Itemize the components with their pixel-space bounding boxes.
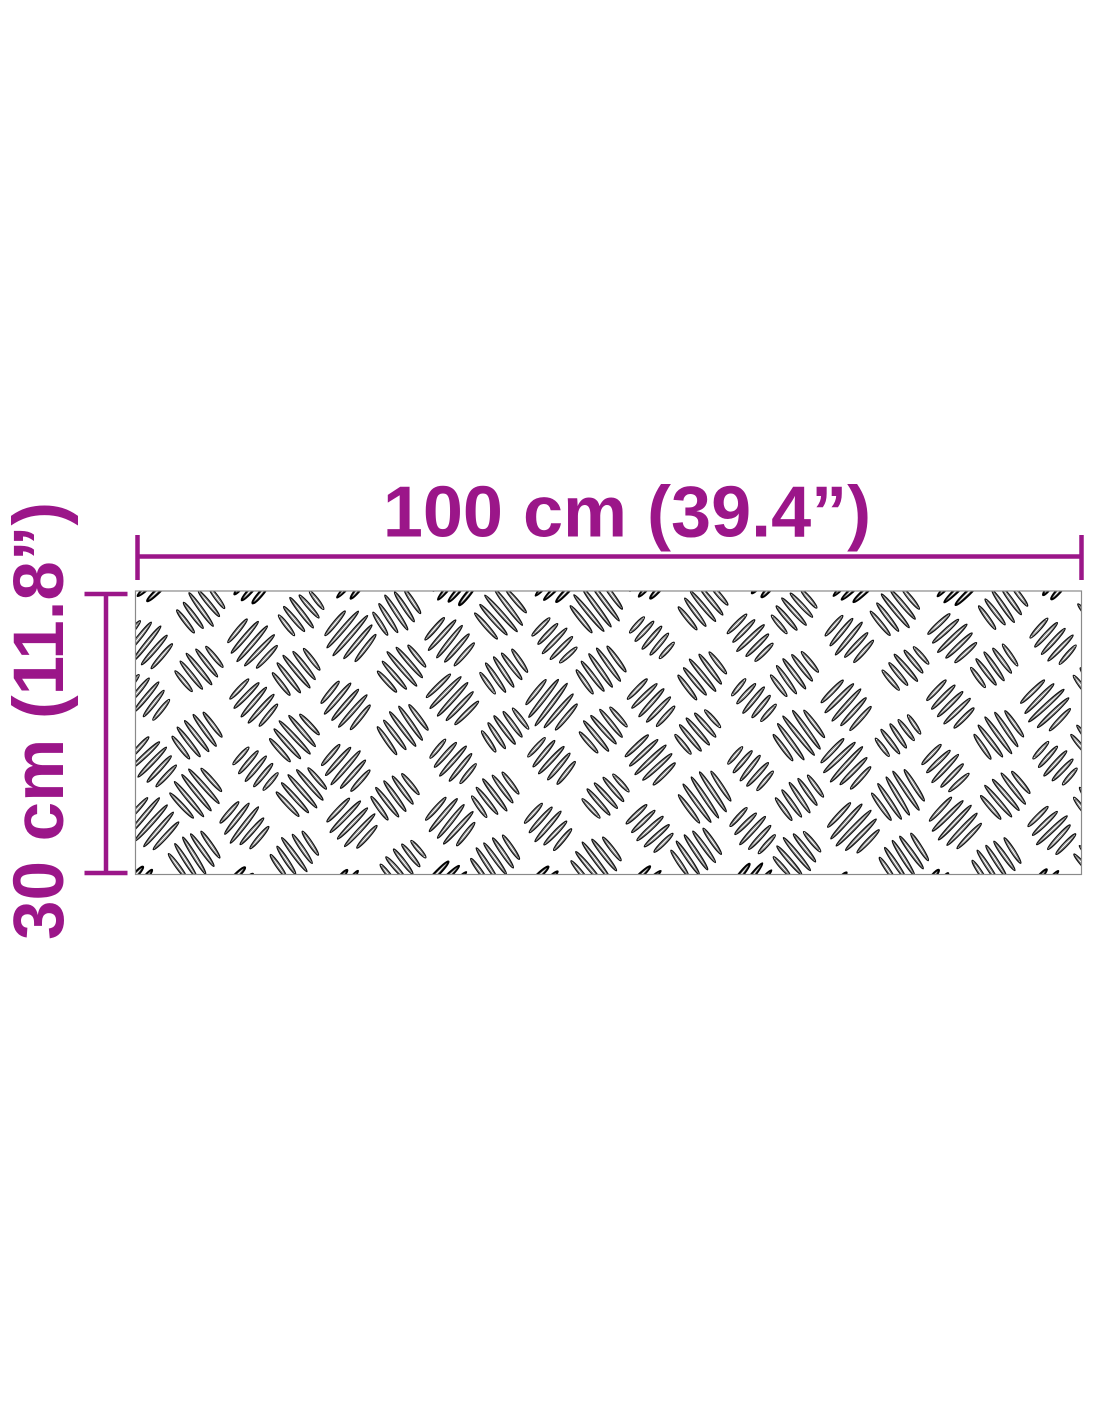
svg-text:30 cm (11.8”): 30 cm (11.8”) (0, 502, 79, 940)
svg-text:100 cm (39.4”): 100 cm (39.4”) (383, 473, 871, 553)
